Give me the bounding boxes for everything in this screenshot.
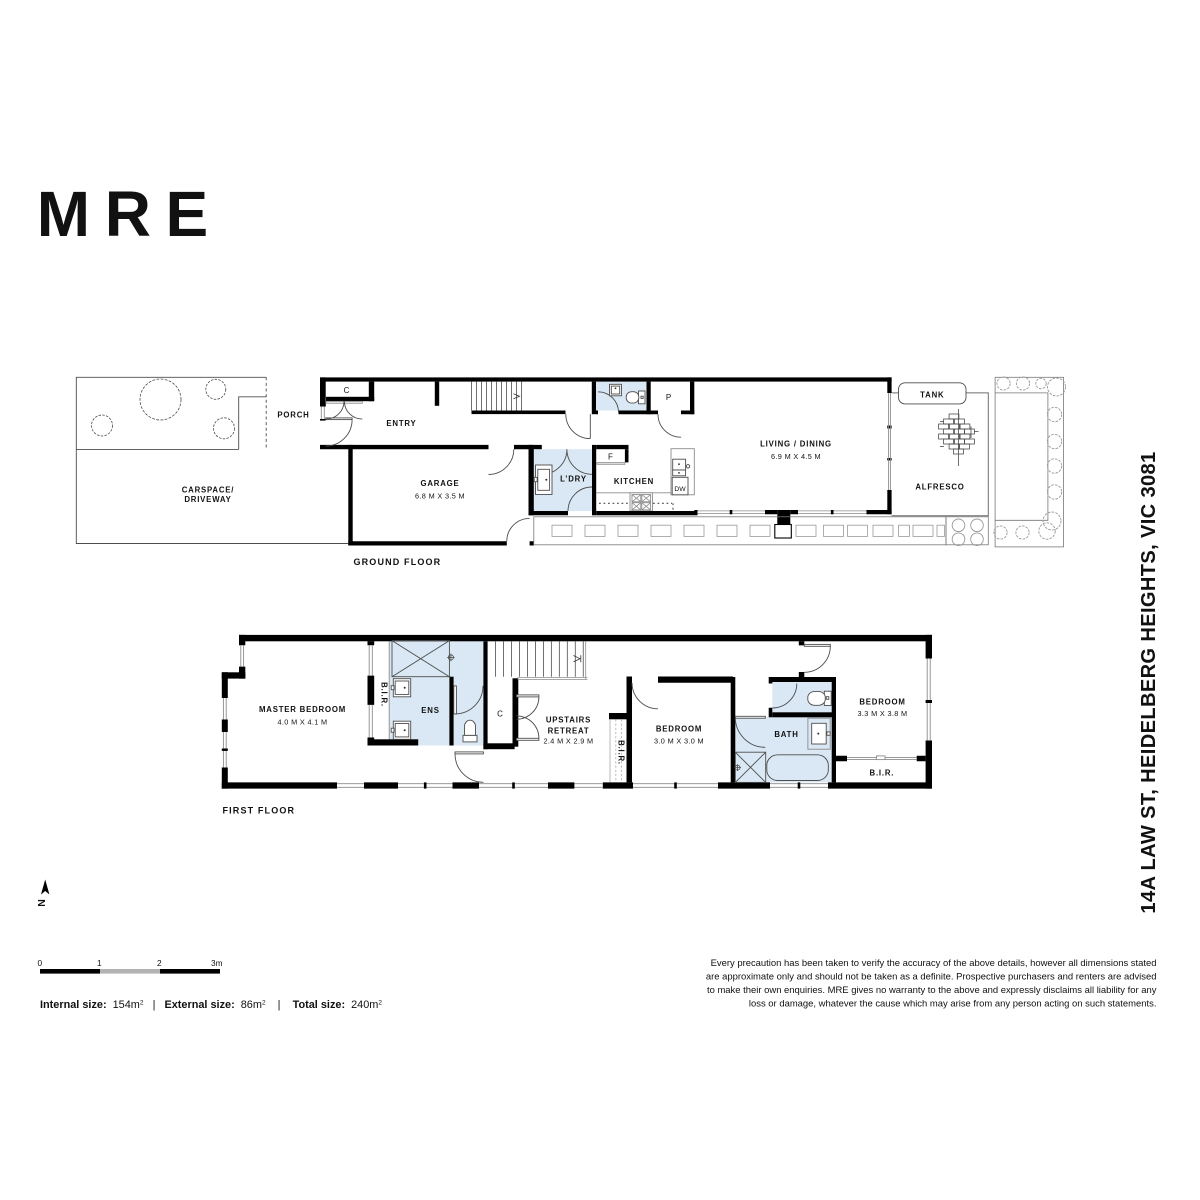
svg-text:2.4 M X 2.9 M: 2.4 M X 2.9 M xyxy=(544,737,594,746)
svg-text:ALFRESCO: ALFRESCO xyxy=(915,483,964,492)
svg-text:ENTRY: ENTRY xyxy=(386,419,416,428)
svg-text:FIRST FLOOR: FIRST FLOOR xyxy=(223,806,296,816)
svg-text:2: 2 xyxy=(157,958,162,968)
svg-text:6.8 M X 3.5 M: 6.8 M X 3.5 M xyxy=(415,492,465,501)
svg-text:3.3 M X 3.8 M: 3.3 M X 3.8 M xyxy=(858,709,908,718)
svg-text:B.I.R.: B.I.R. xyxy=(870,769,895,778)
svg-text:3m: 3m xyxy=(211,958,223,968)
svg-text:B.I.R.: B.I.R. xyxy=(380,682,389,707)
svg-text:LIVING / DINING: LIVING / DINING xyxy=(760,440,832,449)
svg-text:TANK: TANK xyxy=(920,391,944,400)
svg-text:N: N xyxy=(36,899,48,907)
svg-text:MRE: MRE xyxy=(37,178,223,250)
svg-text:B.I.R.: B.I.R. xyxy=(617,740,626,765)
svg-text:0: 0 xyxy=(38,958,43,968)
svg-text:Every precaution has been take: Every precaution has been taken to verif… xyxy=(711,958,1157,969)
svg-text:14A LAW ST, HEIDELBERG HEIGHTS: 14A LAW ST, HEIDELBERG HEIGHTS, VIC 3081 xyxy=(1138,451,1160,913)
svg-text:BEDROOM: BEDROOM xyxy=(859,698,905,707)
svg-text:MASTER BEDROOM: MASTER BEDROOM xyxy=(259,705,346,714)
svg-text:6.9 M X 4.5 M: 6.9 M X 4.5 M xyxy=(771,452,821,461)
svg-text:BEDROOM: BEDROOM xyxy=(656,725,702,734)
svg-text:DW: DW xyxy=(674,486,686,493)
svg-text:RETREAT: RETREAT xyxy=(548,727,590,736)
svg-text:C: C xyxy=(344,386,350,395)
svg-text:GARAGE: GARAGE xyxy=(420,479,459,488)
svg-text:to make their own enquiries. M: to make their own enquiries. MRE gives n… xyxy=(707,985,1157,996)
svg-text:UPSTAIRS: UPSTAIRS xyxy=(546,716,591,725)
svg-text:1: 1 xyxy=(97,958,102,968)
svg-text:DRIVEWAY: DRIVEWAY xyxy=(184,495,231,504)
svg-text:C: C xyxy=(497,710,503,719)
svg-text:ENS: ENS xyxy=(421,706,439,715)
svg-text:3.0 M X 3.0 M: 3.0 M X 3.0 M xyxy=(654,737,704,746)
svg-text:P: P xyxy=(666,393,671,402)
svg-text:Internal size: 154m2 | Ex: Internal size: 154m2 | External size: 86… xyxy=(40,999,382,1011)
svg-text:PORCH: PORCH xyxy=(277,411,309,420)
svg-text:are approximate only and shoul: are approximate only and should not be t… xyxy=(706,972,1157,983)
svg-text:loss or damage, whatever the c: loss or damage, whatever the cause which… xyxy=(749,999,1157,1010)
svg-text:BATH: BATH xyxy=(774,730,798,739)
svg-text:4.0 M X 4.1 M: 4.0 M X 4.1 M xyxy=(278,718,328,727)
svg-text:KITCHEN: KITCHEN xyxy=(614,477,654,486)
svg-text:GROUND FLOOR: GROUND FLOOR xyxy=(354,557,442,567)
svg-text:CARSPACE/: CARSPACE/ xyxy=(182,486,235,495)
svg-text:L’DRY: L’DRY xyxy=(560,475,587,484)
svg-text:F: F xyxy=(608,453,613,462)
